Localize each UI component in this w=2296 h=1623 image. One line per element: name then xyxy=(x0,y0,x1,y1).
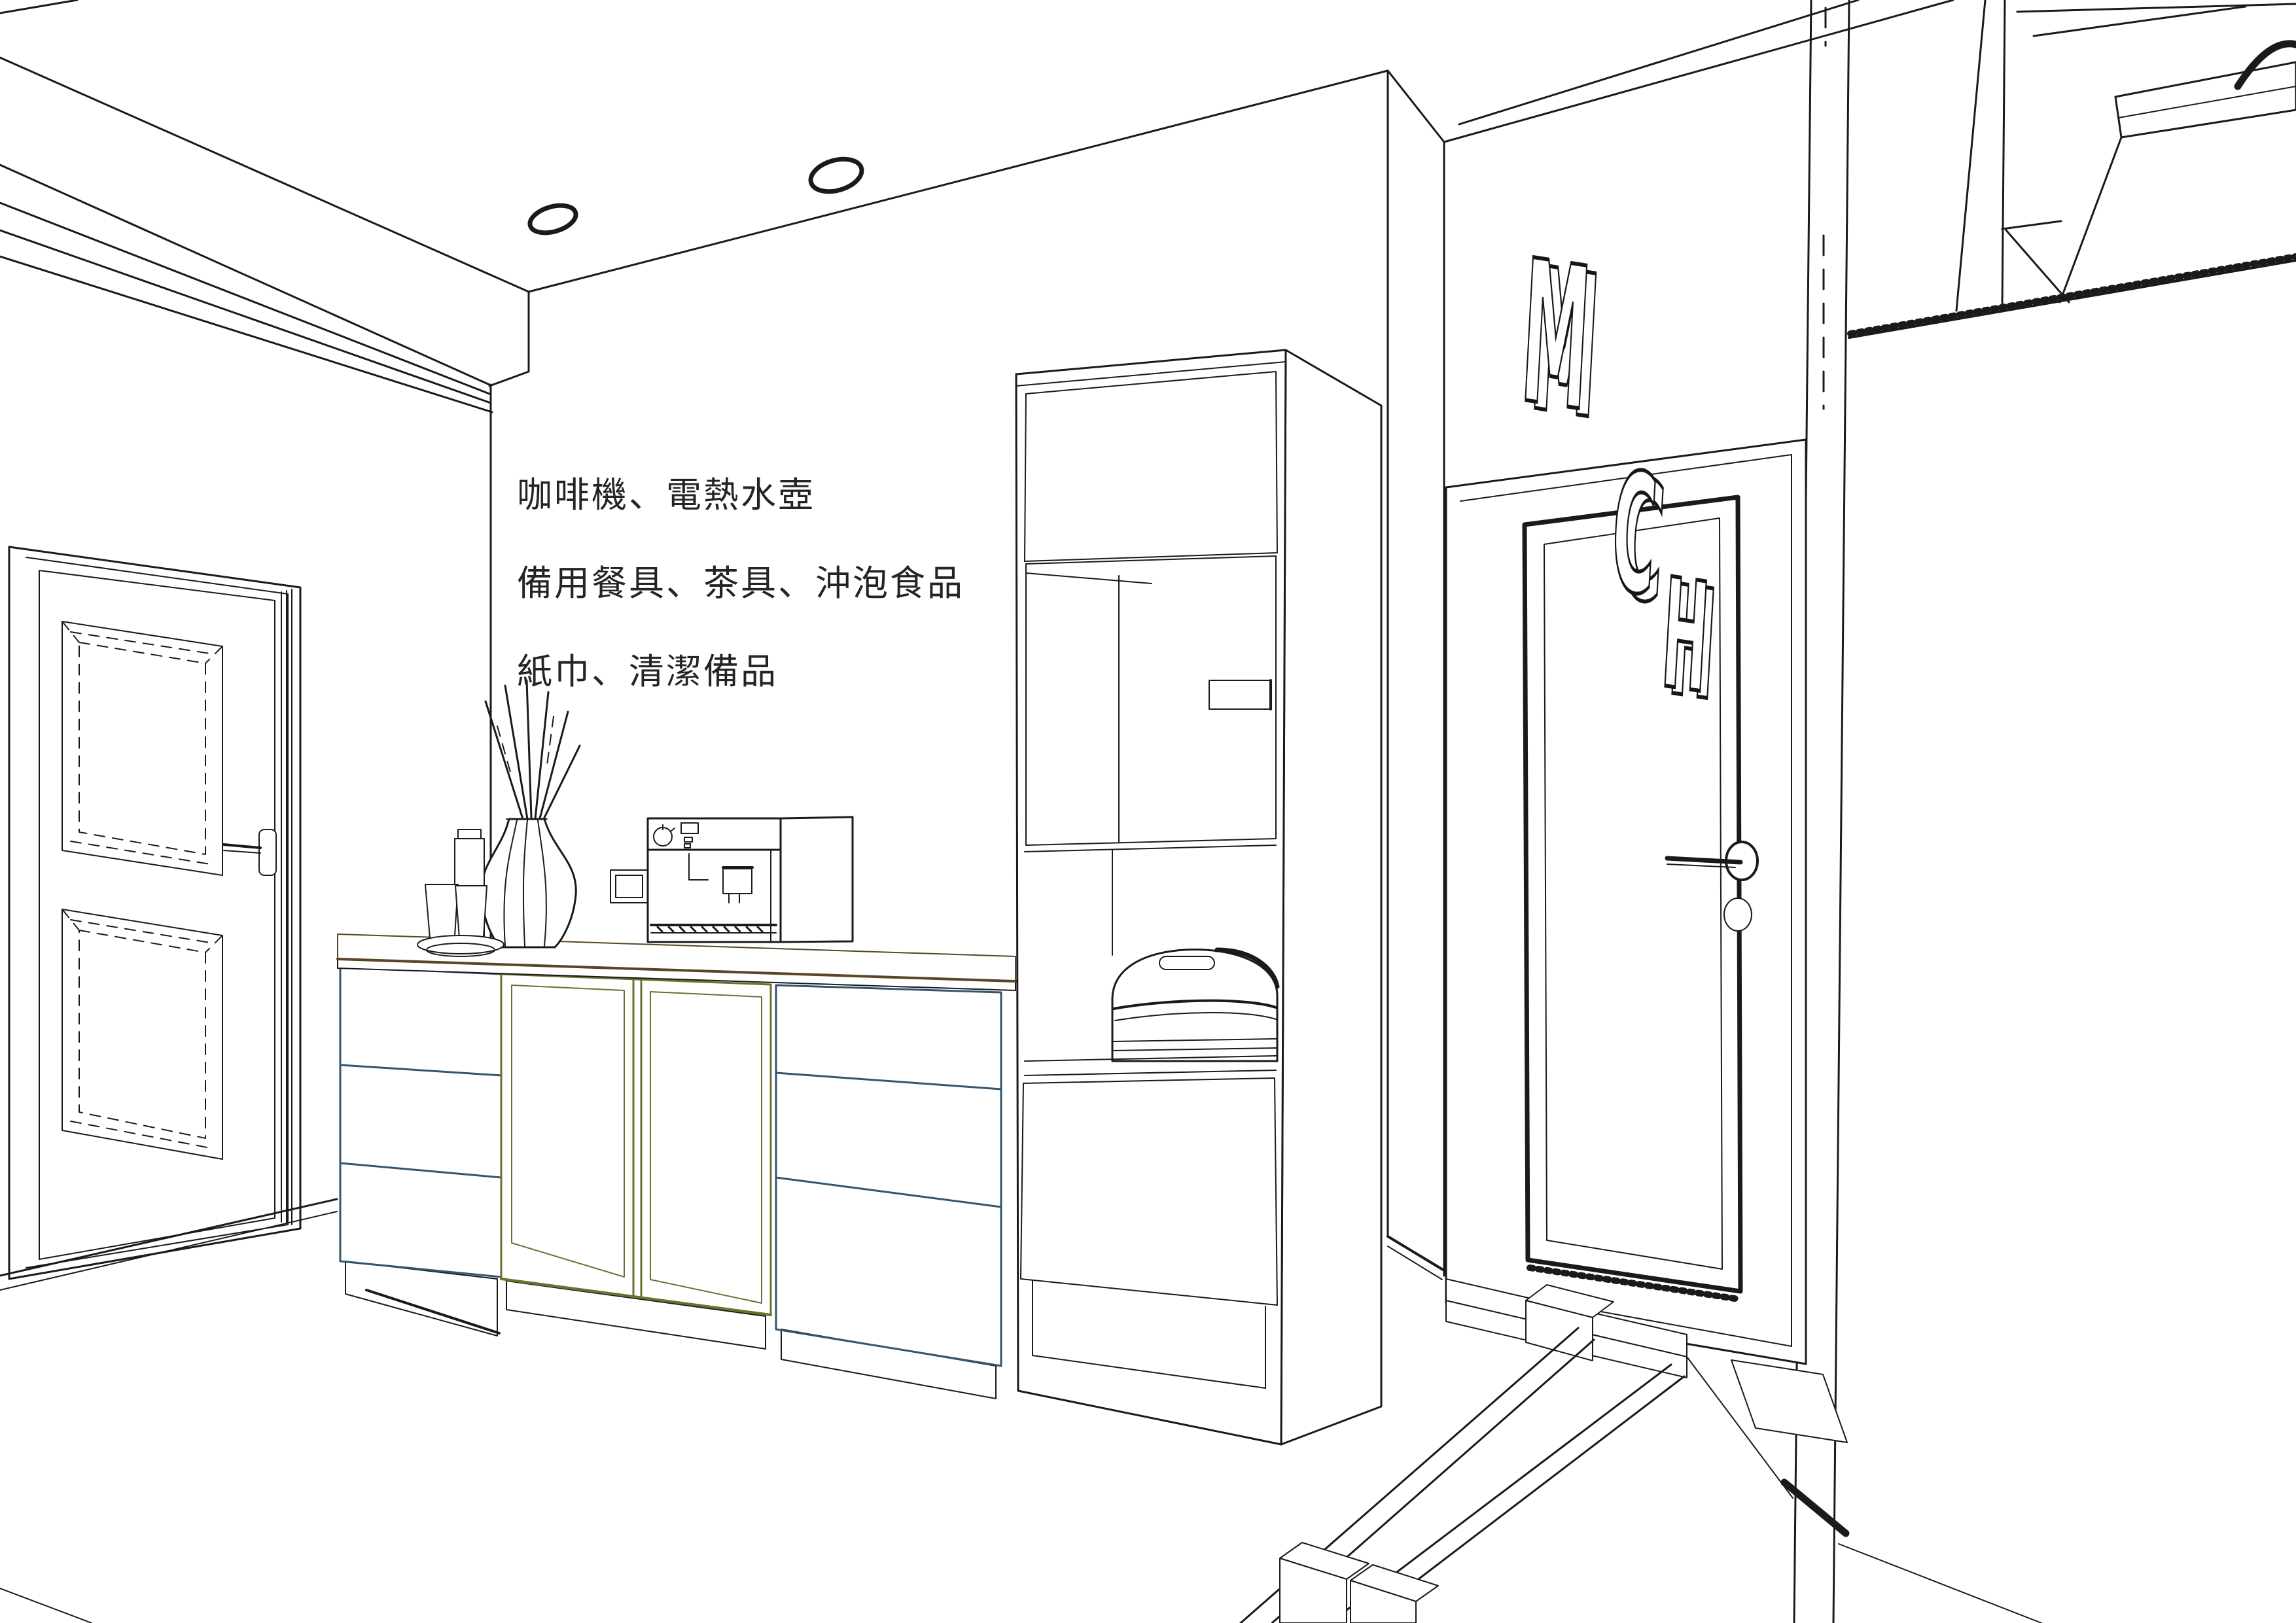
cabinet-blue-left xyxy=(340,967,501,1277)
niche-outlet xyxy=(1209,680,1271,709)
tall-cabinet-front xyxy=(1016,350,1286,1444)
legend-swatch-tableware xyxy=(396,548,460,616)
rendering-canvas: M M C C H H xyxy=(0,0,2296,1623)
legend-swatch-coffee xyxy=(396,460,460,528)
floor-box xyxy=(1280,1543,1438,1623)
tall-cabinet xyxy=(1016,350,1381,1444)
cooker-lid-handle xyxy=(1159,956,1214,969)
wall-base-panel xyxy=(1731,1360,1847,1442)
loft-structure xyxy=(1849,0,2296,338)
sign-letter-m-shadow: M xyxy=(1517,217,1595,455)
legend-label-cleaning: 紙巾、清潔備品 xyxy=(517,651,778,692)
vase xyxy=(482,819,576,947)
door-leaf xyxy=(39,570,275,1259)
lock-escutcheon xyxy=(1724,898,1752,931)
cabinet-yellow xyxy=(501,974,771,1315)
tall-cabinet-side xyxy=(1281,350,1381,1444)
legend-swatch-cleaning xyxy=(396,637,460,705)
sloped-plank xyxy=(2115,62,2296,137)
plate xyxy=(417,935,504,956)
legend-label-coffee: 咖啡機、電熱水壺 xyxy=(517,474,815,515)
legend: 咖啡機、電熱水壺 備用餐具、茶具、沖泡食品 紙巾、清潔備品 xyxy=(396,460,964,705)
dried-stems xyxy=(486,680,580,823)
cabinet-blue-right xyxy=(776,985,1001,1366)
downlight-icon xyxy=(807,154,866,197)
interior-rendering: M M C C H H xyxy=(0,0,2296,1623)
legend-label-tableware: 備用餐具、茶具、沖泡食品 xyxy=(517,563,964,604)
downlight-icon xyxy=(527,201,579,237)
counter-items xyxy=(417,680,853,956)
sideboard xyxy=(338,934,1016,1399)
floor-lines-corner xyxy=(1388,1236,1444,1280)
rice-cooker xyxy=(1112,950,1277,1061)
left-door xyxy=(9,547,300,1279)
handrail xyxy=(1849,260,2296,338)
coffee-machine xyxy=(648,817,853,942)
ceiling-downlights xyxy=(527,154,866,237)
